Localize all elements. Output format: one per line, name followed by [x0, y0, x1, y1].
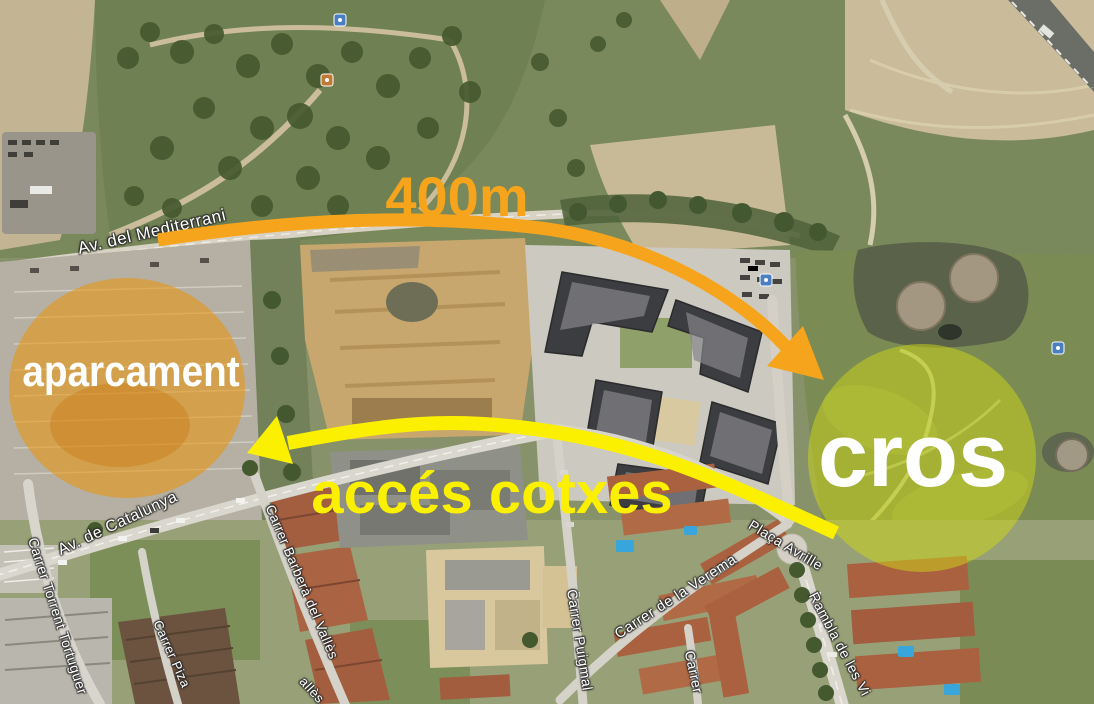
parking-label: aparcament: [22, 350, 239, 394]
distance-label: 400m: [385, 169, 528, 225]
annotation-text-layer: aparcament cros 400m accés cotxes: [0, 0, 1094, 704]
cros-label: cros: [818, 411, 1008, 501]
annotated-satellite-map: Av. del Mediterrani Av. de Catalunya Car…: [0, 0, 1094, 704]
access-label: accés cotxes: [311, 465, 672, 523]
